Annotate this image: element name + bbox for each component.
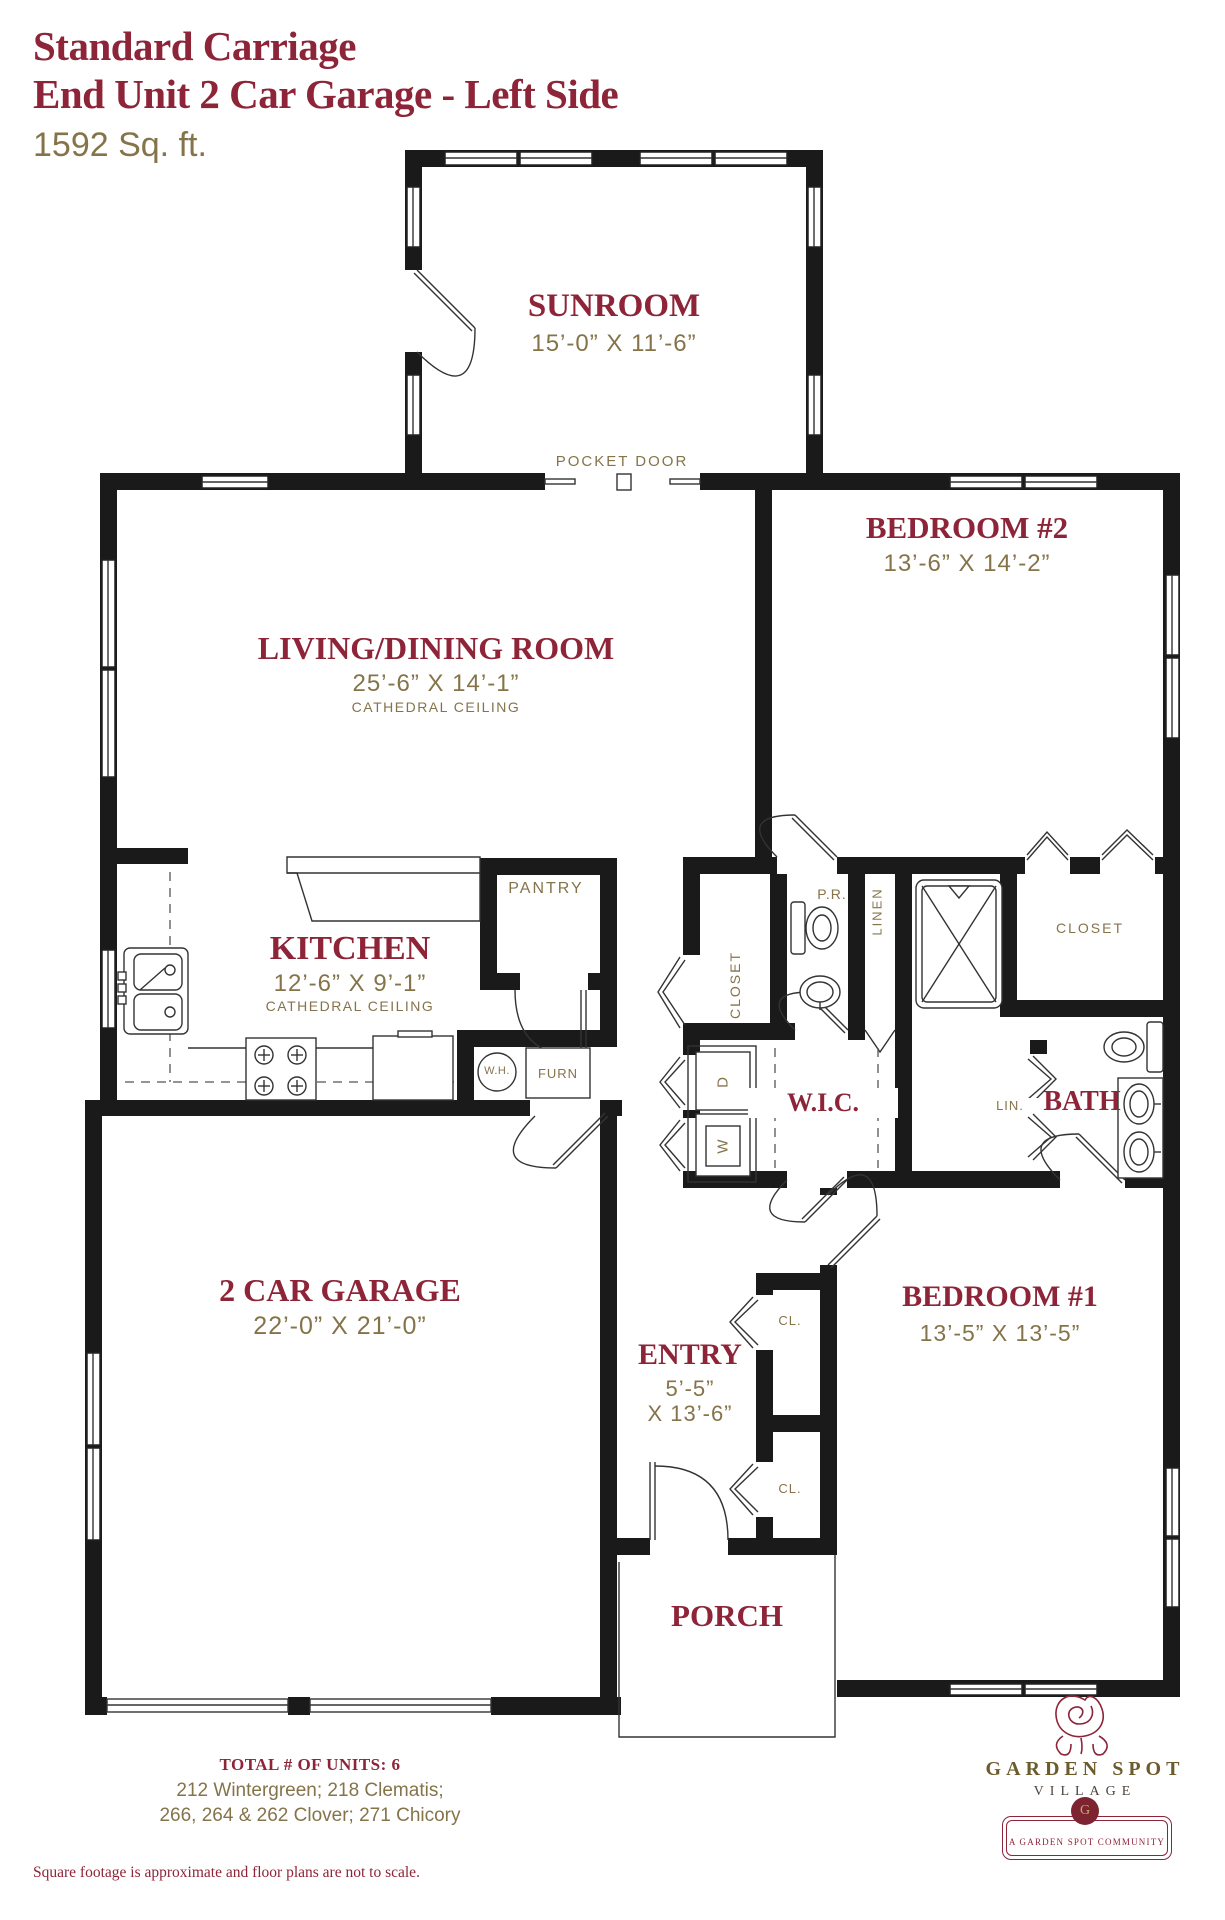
powder-room-label: P.R. [802, 886, 862, 902]
bath-toilet [1104, 1022, 1163, 1072]
pr-sink [800, 976, 840, 1010]
washer-label: W [715, 1116, 732, 1176]
kitchen-sink [118, 948, 188, 1034]
logo-badge: G [1071, 1797, 1099, 1825]
bedroom1-name: BEDROOM #1 [850, 1280, 1150, 1314]
logo-tagline: A GARDEN SPOT COMMUNITY [1009, 1829, 1165, 1847]
page-title-line1: Standard Carriage [33, 22, 356, 70]
dryer-label: D [715, 1052, 732, 1112]
pr-toilet [791, 902, 838, 954]
garage-entry-door [513, 1113, 608, 1168]
sunroom-name: SUNROOM [464, 288, 764, 325]
laundry-bifolds [660, 1057, 685, 1171]
refrigerator [373, 1031, 453, 1100]
living-room-dims: 25’-6” X 14’-1” [236, 670, 636, 698]
entry-name: ENTRY [610, 1338, 770, 1372]
logo-brand: GARDEN SPOT [985, 1758, 1185, 1781]
hall-closet-bifold [658, 957, 685, 1028]
wic-name: W.I.C. [748, 1088, 898, 1118]
pocket-door-symbol [545, 474, 700, 490]
pocket-door-label: POCKET DOOR [522, 453, 722, 470]
page-title-line2: End Unit 2 Car Garage - Left Side [33, 70, 618, 118]
square-footage: 1592 Sq. ft. [33, 126, 207, 165]
floor-plan-page: Standard Carriage End Unit 2 Car Garage … [0, 0, 1225, 1920]
bedroom2-closet-label: CLOSET [1030, 920, 1150, 936]
entry-dims2: X 13’-6” [610, 1401, 770, 1427]
bedroom2-dims: 13’-6” X 14’-2” [817, 550, 1117, 578]
rose-icon [1056, 1696, 1107, 1755]
entry-dims1: 5’-5” [610, 1376, 770, 1402]
kitchen-name: KITCHEN [250, 930, 450, 968]
pantry-label: PANTRY [486, 880, 606, 898]
porch-outline [619, 1555, 835, 1737]
shower [916, 880, 1002, 1008]
bath-name: BATH [1014, 1086, 1150, 1118]
porch-name: PORCH [627, 1598, 827, 1634]
total-units: TOTAL # OF UNITS: 6 [110, 1755, 510, 1775]
furnace-label: FURN [518, 1066, 598, 1081]
kitchen-note: CATHEDRAL CEILING [250, 998, 450, 1014]
kitchen-dims: 12’-6” X 9’-1” [250, 970, 450, 998]
linen-niche-bifold [865, 1030, 895, 1052]
sunroom-dims: 15’-0” X 11’-6” [464, 330, 764, 358]
bedroom1-dims: 13’-5” X 13’-5” [850, 1320, 1150, 1347]
living-room-note: CATHEDRAL CEILING [236, 699, 636, 715]
bedroom2-name: BEDROOM #2 [817, 510, 1117, 546]
closet2-label: CL. [760, 1481, 820, 1496]
bedroom1-windows [950, 1468, 1179, 1695]
closet1-label: CL. [760, 1313, 820, 1328]
garage-name: 2 CAR GARAGE [190, 1272, 490, 1309]
bedroom2-closet-bifolds [1027, 830, 1153, 860]
disclaimer: Square footage is approximate and floor … [33, 1864, 420, 1882]
stove [246, 1038, 316, 1100]
garage-dims: 22’-0” X 21’-0” [190, 1312, 490, 1341]
living-room-windows [102, 476, 268, 777]
linen-label: LINEN [870, 867, 885, 957]
hall-closet-label: CLOSET [727, 940, 743, 1030]
addresses-line1: 212 Wintergreen; 218 Clematis; [110, 1780, 510, 1802]
peninsula-counter [287, 857, 480, 921]
addresses-line2: 266, 264 & 262 Clover; 271 Chicory [110, 1805, 510, 1827]
living-room-name: LIVING/DINING ROOM [236, 630, 636, 667]
kitchen-window [102, 950, 115, 1028]
front-door [650, 1462, 728, 1540]
